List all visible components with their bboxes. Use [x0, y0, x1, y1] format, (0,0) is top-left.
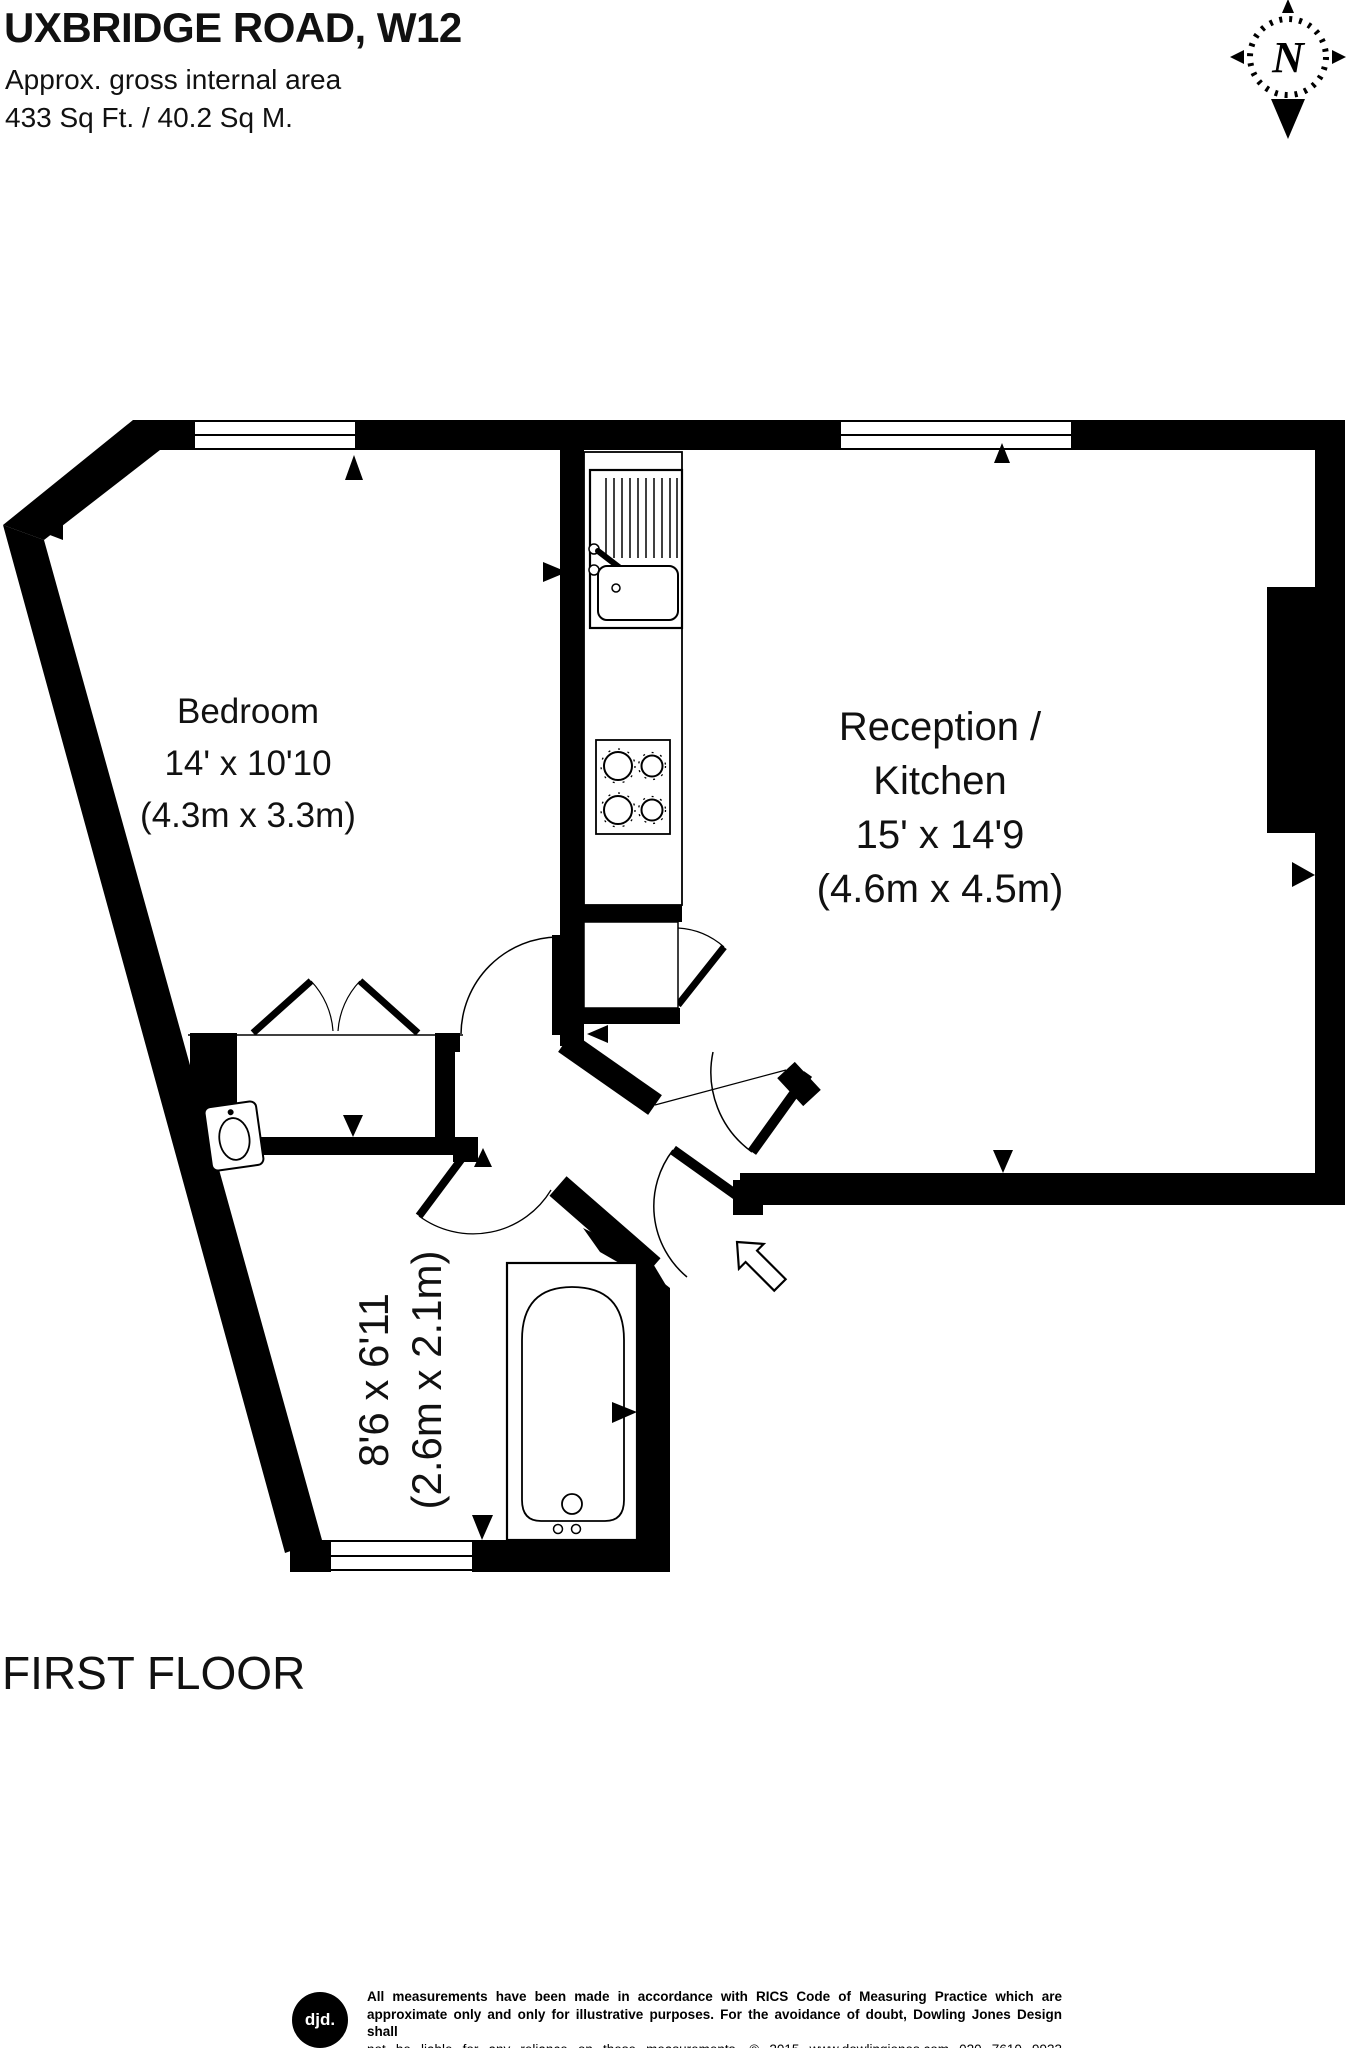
sink-basin — [598, 566, 678, 620]
entrance-door — [654, 1150, 746, 1277]
disclaimer-line1: All measurements have been made in accor… — [367, 1988, 1062, 2006]
reception-label: Reception / Kitchen 15' x 14'9 (4.6m x 4… — [817, 700, 1064, 916]
area-value: 433 Sq Ft. / 40.2 Sq M. — [5, 102, 293, 134]
bathroom-label: 8'6 x 6'11 (2.6m x 2.1m) — [347, 1250, 453, 1509]
top-left-diagonal-wall — [3, 420, 160, 540]
hall-wall-lower — [558, 1186, 652, 1268]
disclaimer-line2: approximate only and only for illustrati… — [367, 2006, 1062, 2041]
kitchen-bottom-wall — [584, 905, 682, 922]
bedroom-dimensions-metric: (4.3m x 3.3m) — [140, 790, 356, 842]
area-subtitle: Approx. gross internal area — [5, 64, 341, 96]
bathroom-dimensions-imperial: 8'6 x 6'11 — [347, 1250, 400, 1509]
bath-drain — [562, 1494, 582, 1514]
reception-window — [840, 420, 1072, 450]
arrow-bedroom-up — [345, 455, 363, 480]
bath — [507, 1263, 637, 1540]
left-wall — [3, 525, 322, 1553]
sink-drain — [612, 584, 620, 592]
floor-label: FIRST FLOOR — [2, 1646, 305, 1700]
reception-bottom-wall — [740, 1173, 1345, 1205]
reception-name-line1: Reception / — [817, 700, 1064, 754]
doors — [253, 928, 808, 1277]
disclaimer: All measurements have been made in accor… — [367, 1988, 1062, 2048]
reception-name-line2: Kitchen — [817, 754, 1064, 808]
bedroom-window — [194, 420, 356, 450]
bedroom-label: Bedroom 14' x 10'10 (4.3m x 3.3m) — [140, 686, 356, 842]
compass-south-pointer — [1271, 99, 1305, 139]
cupboard-door — [678, 928, 724, 1005]
disclaimer-line3: not be liable for any reliance on these … — [367, 2041, 1062, 2048]
bathroom-basin — [204, 1101, 264, 1172]
closet-right-wall — [435, 1040, 455, 1152]
arrow-reception-right — [1292, 862, 1315, 887]
kitchen-sink — [589, 470, 682, 628]
page-title: UXBRIDGE ROAD, W12 — [4, 4, 462, 52]
entrance-arrow-icon — [725, 1230, 793, 1298]
kitchen-fixtures — [584, 452, 682, 1008]
bath-tap-left — [554, 1525, 563, 1534]
reception-door-threshold — [655, 1070, 786, 1105]
compass-n-label: N — [1271, 33, 1306, 82]
bedroom-dimensions-imperial: 14' x 10'10 — [140, 738, 356, 790]
bedroom-name: Bedroom — [140, 686, 356, 738]
floorplan-drawing: N — [0, 0, 1350, 2048]
arrow-hall-left — [587, 1025, 608, 1043]
reception-dimensions-imperial: 15' x 14'9 — [817, 808, 1064, 862]
bedroom-door — [461, 935, 563, 1035]
cupboard — [584, 922, 678, 1008]
bedroom-south-stub — [435, 1033, 460, 1052]
north-arrow: N — [1230, 0, 1346, 139]
bath-right-wall — [637, 1262, 670, 1572]
arrow-closet-down — [343, 1115, 363, 1137]
bath-tap-right — [572, 1525, 581, 1534]
threshold-lines — [188, 1035, 786, 1105]
right-wall — [1315, 420, 1345, 1205]
arrow-reception-down — [993, 1150, 1013, 1173]
closet-double-doors — [253, 981, 418, 1033]
cupboard-bottom-wall — [584, 1008, 680, 1024]
floorplan-page: N UXBRIDGE ROAD, W12 Approx. gross inter… — [0, 0, 1350, 2048]
djd-logo-text: djd. — [305, 2010, 335, 2030]
arrow-bathroom-down — [472, 1515, 493, 1540]
hall-wall-upper — [565, 1042, 655, 1105]
bathroom-window — [330, 1540, 473, 1572]
djd-logo: djd. — [292, 1992, 348, 2048]
kitchen-divider-wall — [560, 450, 584, 1046]
bathroom-dimensions-metric: (2.6m x 2.1m) — [400, 1250, 453, 1509]
hob — [596, 740, 670, 834]
reception-dimensions-metric: (4.6m x 4.5m) — [817, 862, 1064, 916]
right-wall-recess — [1267, 587, 1315, 833]
